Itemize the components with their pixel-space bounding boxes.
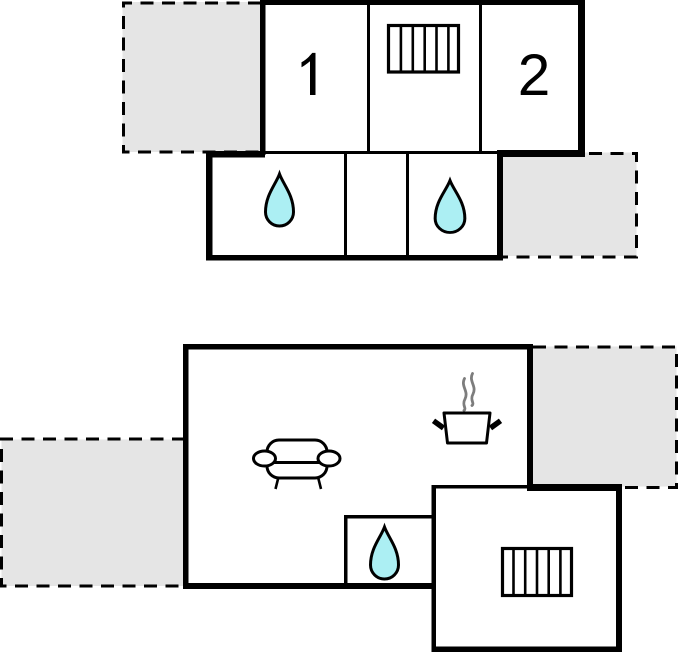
svg-text:2: 2: [518, 43, 551, 108]
